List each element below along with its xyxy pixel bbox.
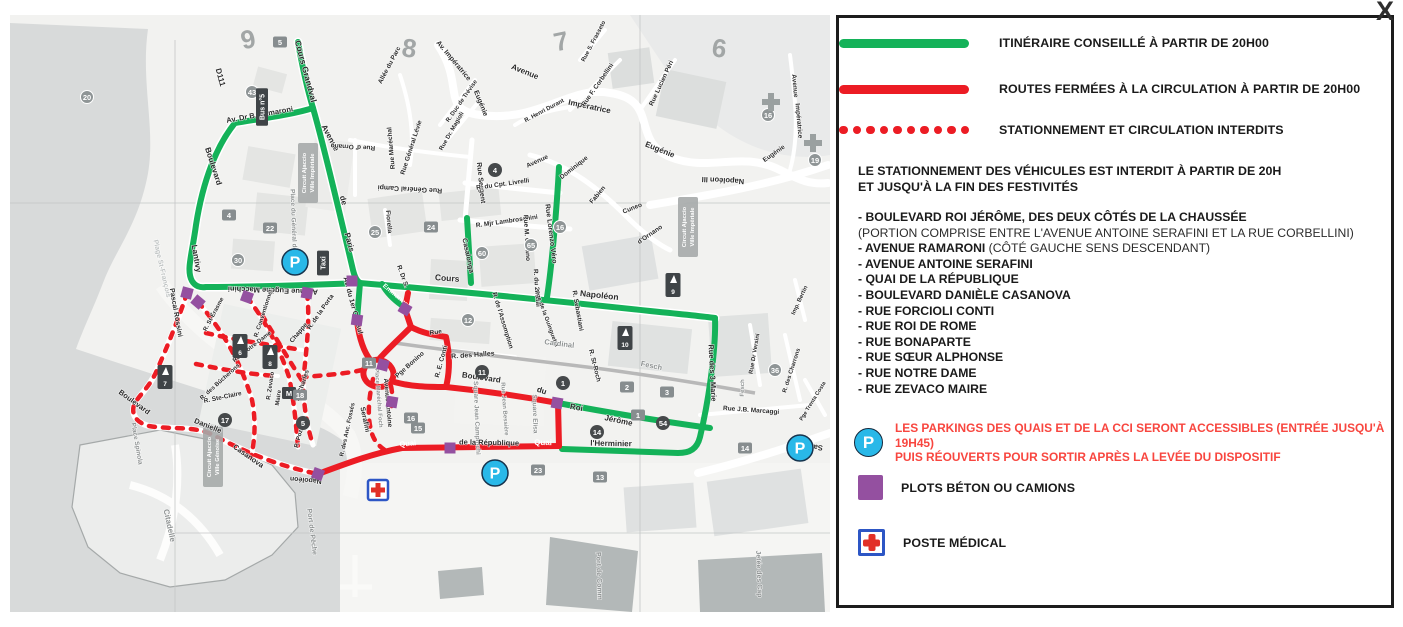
concrete-block-marker	[180, 286, 193, 299]
transport-label: Taxi	[317, 251, 329, 276]
map-number-badge: 30	[232, 254, 245, 267]
legend-label: ROUTES FERMÉES À LA CIRCULATION À PARTIR…	[999, 82, 1360, 96]
map-number-badge: 18	[293, 390, 307, 401]
legend-panel: ITINÉRAIRE CONSEILLÉ À PARTIR DE 20H00 R…	[836, 15, 1394, 608]
map-street-label: Imp. Bertin	[791, 285, 810, 316]
badge-number: 23	[534, 466, 542, 475]
map-number-badge: 22	[263, 223, 277, 234]
circuit-box-label: Circuit AjaccioVille Génoise	[203, 427, 223, 487]
parking-notice: LE STATIONNEMENT DES VÉHICULES EST INTER…	[858, 163, 1281, 195]
badge-number: 3	[665, 388, 669, 397]
concrete-block-marker	[351, 314, 363, 326]
street-list-item: - AVENUE RAMARONI (CÔTÉ GAUCHE SENS DESC…	[858, 241, 1354, 257]
circuit-box-line1: Circuit Ajaccio	[302, 152, 308, 193]
street-list-item: - RUE BONAPARTE	[858, 335, 1354, 351]
circuit-box-line2: Ville Génoise	[215, 438, 221, 475]
transport-label-text: Bus n°5	[259, 94, 267, 120]
map-street-label: Eugénie	[644, 140, 677, 160]
parking-marker: P	[787, 435, 813, 461]
restricted-streets-list: - BOULEVARD ROI JÉRÔME, DES DEUX CÔTÉS D…	[858, 210, 1354, 397]
badge-number: 5	[278, 38, 282, 47]
circuit-box-line1: Circuit Ajaccio	[207, 436, 213, 477]
map-number-badge: 20	[81, 91, 94, 104]
map-number-badge: 5	[296, 416, 310, 430]
map-street-label: Quai	[399, 438, 417, 449]
circuit-box-label: Circuit AjaccioVille Impériale	[298, 143, 318, 203]
concrete-block-marker	[347, 276, 358, 287]
concrete-block-icon	[858, 475, 883, 500]
red-dot	[893, 126, 902, 135]
map-number-badge: 16	[554, 221, 567, 234]
badge-number: 20	[83, 93, 91, 102]
legend-row-medical: POSTE MÉDICAL	[858, 529, 1006, 556]
badge-number: 17	[221, 416, 229, 425]
parking-letter: P	[795, 441, 806, 458]
map-number-badge: 4	[488, 163, 502, 177]
map-canvas: Circuit AjaccioVille ImpérialeCircuit Aj…	[10, 15, 830, 612]
map-street-label: Rue Général Campi	[377, 183, 442, 193]
legend-row-closed: ROUTES FERMÉES À LA CIRCULATION À PARTIR…	[839, 82, 1360, 96]
map-street-label: Square Elisa	[530, 394, 538, 434]
map-number-badge: 13	[593, 472, 607, 483]
street-list-item: - RUE NOTRE DAME	[858, 366, 1354, 382]
map-street-label: Napoléon III	[701, 175, 744, 186]
badge-number: 2	[625, 383, 629, 392]
parking-marker: P	[482, 460, 508, 486]
map-street-label: Pge Bonino	[394, 350, 426, 379]
map-street-label: Roi	[569, 402, 583, 413]
badge-number: 11	[478, 368, 486, 377]
map-number-badge: 60	[476, 247, 489, 260]
badge-number: 16	[764, 111, 772, 120]
map-number-badge: 11	[475, 365, 489, 379]
badge-number: 14	[741, 444, 750, 453]
red-dot	[880, 126, 889, 135]
street-list-item: - QUAI DE LA RÉPUBLIQUE	[858, 272, 1354, 288]
red-dots-swatch	[839, 126, 969, 135]
circuit-box-line2: Ville Impériale	[310, 153, 316, 193]
green-line-swatch	[839, 39, 969, 48]
badge-number: 43	[248, 88, 256, 97]
map-number-badge: 3	[660, 387, 674, 398]
parking-letter: P	[290, 255, 301, 272]
concrete-block-marker	[551, 397, 564, 410]
cross-h	[804, 140, 822, 146]
transport-label: Bus n°5	[256, 88, 268, 125]
plots-label: PLOTS BÉTON OU CAMIONS	[901, 481, 1075, 495]
badge-number: 60	[478, 249, 486, 258]
street-list-item: - RUE SŒUR ALPHONSE	[858, 350, 1354, 366]
street-list-subnote: (PORTION COMPRISE ENTRE L'AVENUE ANTOINE…	[858, 226, 1354, 242]
badge-number: 25	[371, 228, 379, 237]
close-button[interactable]: X	[1372, 0, 1398, 29]
info-sail-badge: 10	[618, 326, 633, 350]
notice-line: ET JUSQU'À LA FIN DES FESTIVITÉS	[858, 179, 1281, 195]
map-number-badge: 14	[590, 425, 604, 439]
map-number-badge: 54	[656, 416, 670, 430]
street-list-item: - BOULEVARD ROI JÉRÔME, DES DEUX CÔTÉS D…	[858, 210, 1354, 226]
sail-badge-number: 6	[238, 350, 242, 357]
badge-number: 22	[266, 224, 274, 233]
district-number-label: 8	[400, 32, 419, 64]
map-street-label: Cardinal	[544, 337, 575, 350]
map-number-badge: 1	[556, 376, 570, 390]
info-sail-badge: 7	[158, 365, 173, 389]
badge-number: 24	[427, 223, 436, 232]
badge-number: 12	[464, 316, 472, 325]
medical-label: POSTE MÉDICAL	[903, 536, 1006, 550]
district-number-label: 9	[238, 23, 258, 55]
badge-number: 15	[414, 424, 422, 433]
map-street-label: de la République	[459, 437, 519, 447]
badge-number: 19	[811, 156, 819, 165]
info-sail-badge: 6	[233, 334, 248, 358]
badge-number: 13	[596, 473, 604, 482]
map-street-label: Cours	[435, 272, 460, 284]
red-dot	[853, 126, 862, 135]
sail-badge-number: 8	[268, 361, 272, 368]
medical-cross-icon	[858, 529, 885, 556]
badge-number: 1	[636, 411, 640, 420]
map-number-badge: 25	[369, 226, 382, 239]
badge-number: 30	[234, 256, 242, 265]
medical-post-marker	[368, 480, 388, 500]
sail-badge-number: 10	[621, 342, 629, 349]
red-dot	[920, 126, 929, 135]
legend-row-no-parking: STATIONNEMENT ET CIRCULATION INTERDITS	[839, 123, 1284, 137]
legend-row-plots: PLOTS BÉTON OU CAMIONS	[858, 475, 1075, 500]
badge-number: 18	[296, 391, 304, 400]
badge-number: 1	[561, 379, 565, 388]
map-number-badge: 5	[273, 37, 287, 48]
concrete-block-marker	[301, 287, 314, 300]
map-number-badge: 23	[531, 465, 545, 476]
map-number-badge: 36	[769, 364, 782, 377]
badge-number: 14	[593, 428, 602, 437]
map-number-badge: 12	[462, 314, 475, 327]
red-line-swatch	[839, 85, 969, 94]
transport-label-text: Taxi	[321, 256, 328, 270]
sail-badge-number: 9	[671, 289, 675, 296]
map-number-badge: 1	[631, 410, 645, 421]
ajaccio-traffic-map: Circuit AjaccioVille ImpérialeCircuit Aj…	[10, 15, 830, 612]
map-street-label: Allée du Parc	[377, 45, 403, 85]
district-number-label: 7	[551, 25, 571, 57]
red-dot	[866, 126, 875, 135]
badge-number: M	[286, 389, 292, 398]
legend-row-recommended: ITINÉRAIRE CONSEILLÉ À PARTIR DE 20H00	[839, 36, 1269, 50]
map-street-label: Place Maréchal Foch	[373, 368, 383, 428]
popup-overlay: Circuit AjaccioVille ImpérialeCircuit Aj…	[0, 0, 1403, 627]
badge-number: 16	[556, 223, 564, 232]
red-dot	[934, 126, 943, 135]
map-street-label: l'Herminier	[590, 439, 632, 449]
badge-number: 36	[771, 366, 779, 375]
red-dot	[947, 126, 956, 135]
red-dot	[907, 126, 916, 135]
map-street-label: Avenue	[510, 62, 540, 81]
badge-number: 16	[407, 414, 415, 423]
parking-icon: P	[854, 428, 883, 457]
parking-note: LES PARKINGS DES QUAIS ET DE LA CCI SERO…	[895, 421, 1391, 465]
map-number-badge: 17	[218, 413, 232, 427]
map-number-badge: 4	[222, 210, 236, 221]
info-sail-badge: 9	[666, 273, 681, 297]
street-list-item: - RUE ROI DE ROME	[858, 319, 1354, 335]
street-list-item: - RUE FORCIOLI CONTI	[858, 304, 1354, 320]
map-street-label: Rue F. Corbellini	[580, 62, 615, 108]
map-street-label: D111	[214, 67, 228, 87]
concrete-block-marker	[386, 396, 399, 409]
circuit-box-label: Circuit AjaccioVille Impériale	[678, 197, 698, 257]
parking-letter: P	[490, 466, 501, 483]
map-street-label: Fesch	[740, 379, 747, 397]
street-list-item: - AVENUE ANTOINE SERAFINI	[858, 257, 1354, 273]
parking-marker: P	[282, 249, 308, 275]
map-street-label: Quai	[534, 438, 552, 447]
notice-line: LE STATIONNEMENT DES VÉHICULES EST INTER…	[858, 163, 1281, 179]
medical-cross-h	[371, 488, 385, 493]
legend-label: ITINÉRAIRE CONSEILLÉ À PARTIR DE 20H00	[999, 36, 1269, 50]
sail-badge-number: 7	[163, 381, 167, 388]
map-number-badge: 16	[404, 413, 418, 424]
map-number-badge: 19	[809, 154, 822, 167]
info-sail-badge: 8	[263, 345, 278, 369]
circuit-box-line1: Circuit Ajaccio	[682, 206, 688, 247]
badge-number: 65	[527, 241, 535, 250]
red-dot	[961, 126, 970, 135]
map-number-badge: 14	[738, 443, 752, 454]
street-list-item: - RUE ZEVACO MAIRE	[858, 382, 1354, 398]
cross-h	[762, 99, 780, 105]
map-number-badge: 11	[362, 358, 376, 369]
map-number-badge: 24	[424, 222, 438, 233]
map-street-label: R. des Charrons	[782, 347, 802, 394]
map-number-badge: 15	[411, 423, 425, 434]
legend-label: STATIONNEMENT ET CIRCULATION INTERDITS	[999, 123, 1284, 137]
street-list-item: - BOULEVARD DANIÈLE CASANOVA	[858, 288, 1354, 304]
badge-number: 11	[365, 359, 373, 368]
map-number-badge: 2	[620, 382, 634, 393]
legend-row-parking: P LES PARKINGS DES QUAIS ET DE LA CCI SE…	[854, 421, 1391, 465]
map-street-label: Rue S. Frasseto	[581, 20, 608, 63]
concrete-block-marker	[445, 443, 456, 454]
badge-number: 5	[301, 419, 305, 428]
map-number-badge: 65	[525, 239, 538, 252]
red-dot	[839, 126, 848, 135]
badge-number: 54	[659, 419, 668, 428]
circuit-box-line2: Ville Impériale	[690, 207, 696, 247]
